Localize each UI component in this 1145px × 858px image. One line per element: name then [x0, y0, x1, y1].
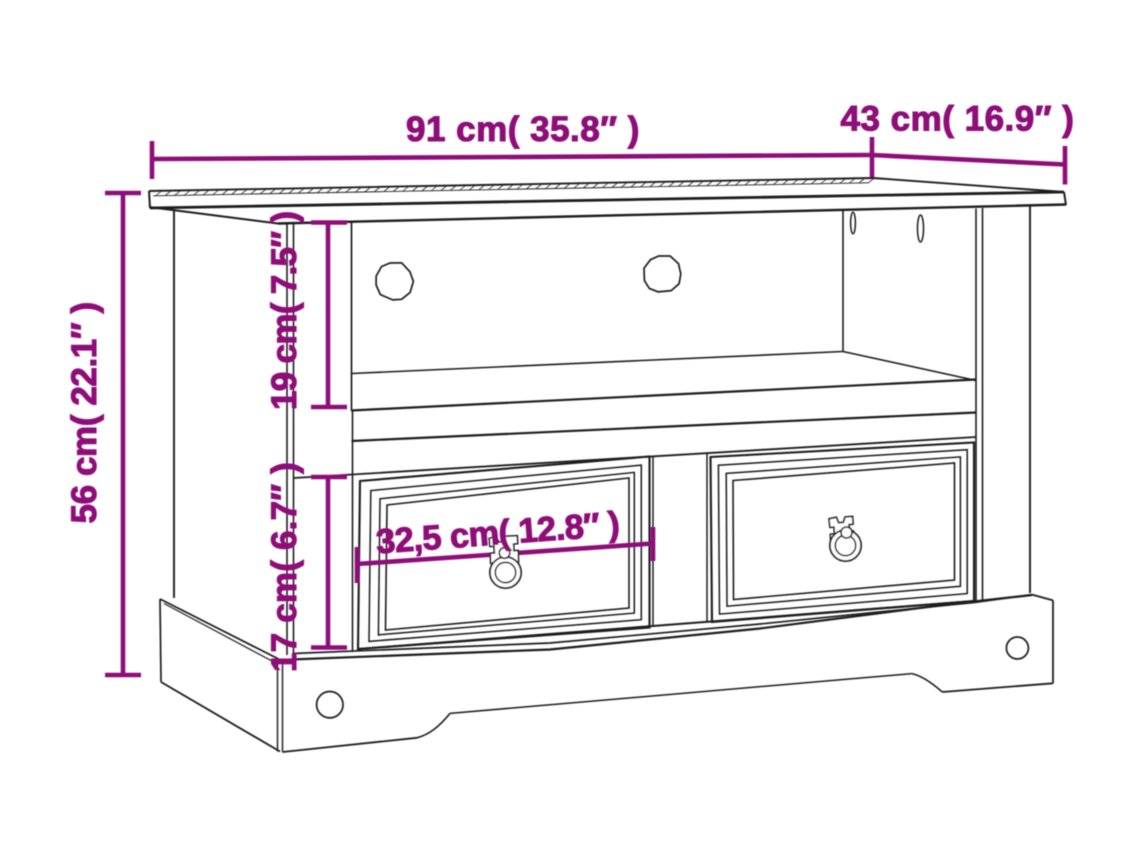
svg-text:17 cm( 6.7″ ): 17 cm( 6.7″ ) [265, 462, 304, 672]
svg-text:56 cm( 22.1″ ): 56 cm( 22.1″ ) [65, 302, 104, 523]
svg-text:91 cm( 35.8″ ): 91 cm( 35.8″ ) [406, 110, 640, 149]
svg-text:43 cm( 16.9″ ): 43 cm( 16.9″ ) [841, 100, 1075, 139]
svg-text:19 cm( 7.5″ ): 19 cm( 7.5″ ) [265, 212, 304, 410]
